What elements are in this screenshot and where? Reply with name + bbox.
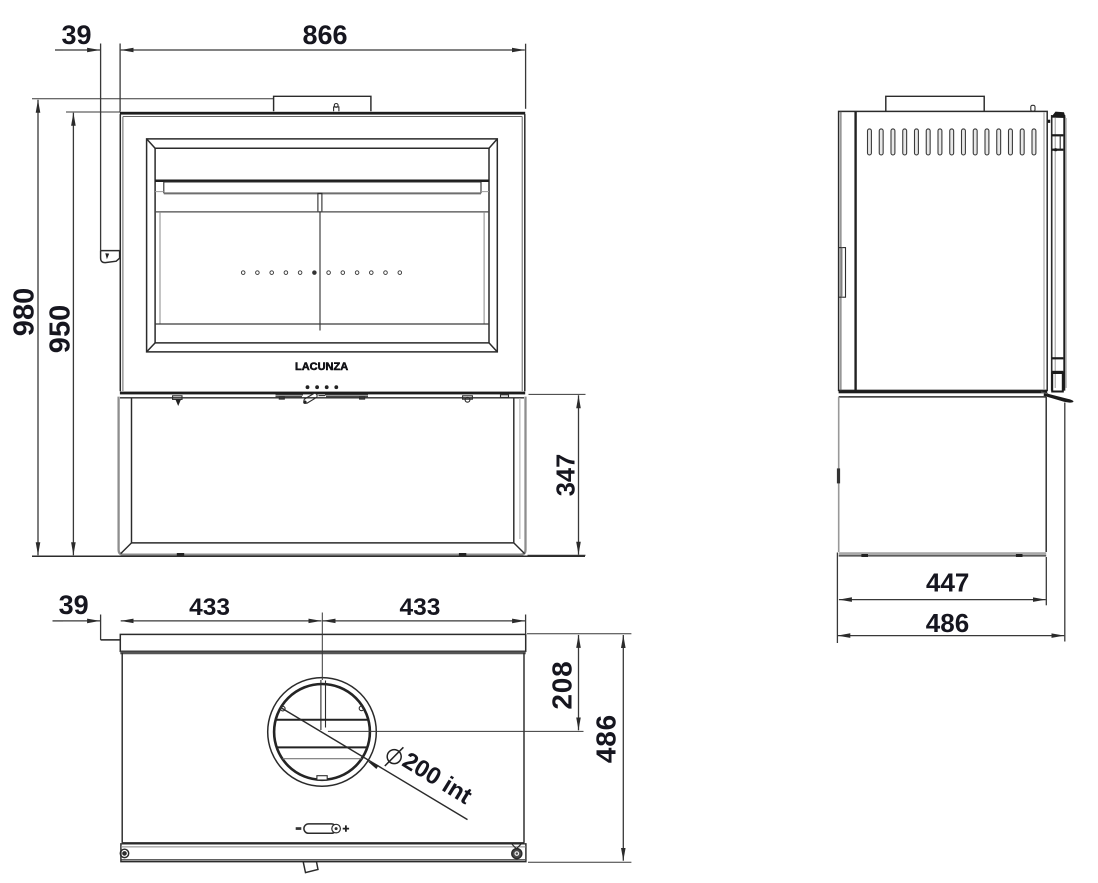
svg-text:39: 39 <box>59 590 89 620</box>
svg-text:208: 208 <box>547 660 578 709</box>
svg-text:866: 866 <box>302 20 347 50</box>
svg-text:39: 39 <box>61 20 91 50</box>
svg-text:347: 347 <box>553 454 581 497</box>
svg-text:447: 447 <box>926 568 969 598</box>
svg-text:LACUNZA: LACUNZA <box>295 361 348 373</box>
svg-text:433: 433 <box>189 594 230 621</box>
svg-text:433: 433 <box>400 594 441 621</box>
svg-text:486: 486 <box>926 608 969 638</box>
svg-text:980: 980 <box>9 288 41 336</box>
svg-text:950: 950 <box>45 305 77 353</box>
svg-text:486: 486 <box>591 714 622 763</box>
